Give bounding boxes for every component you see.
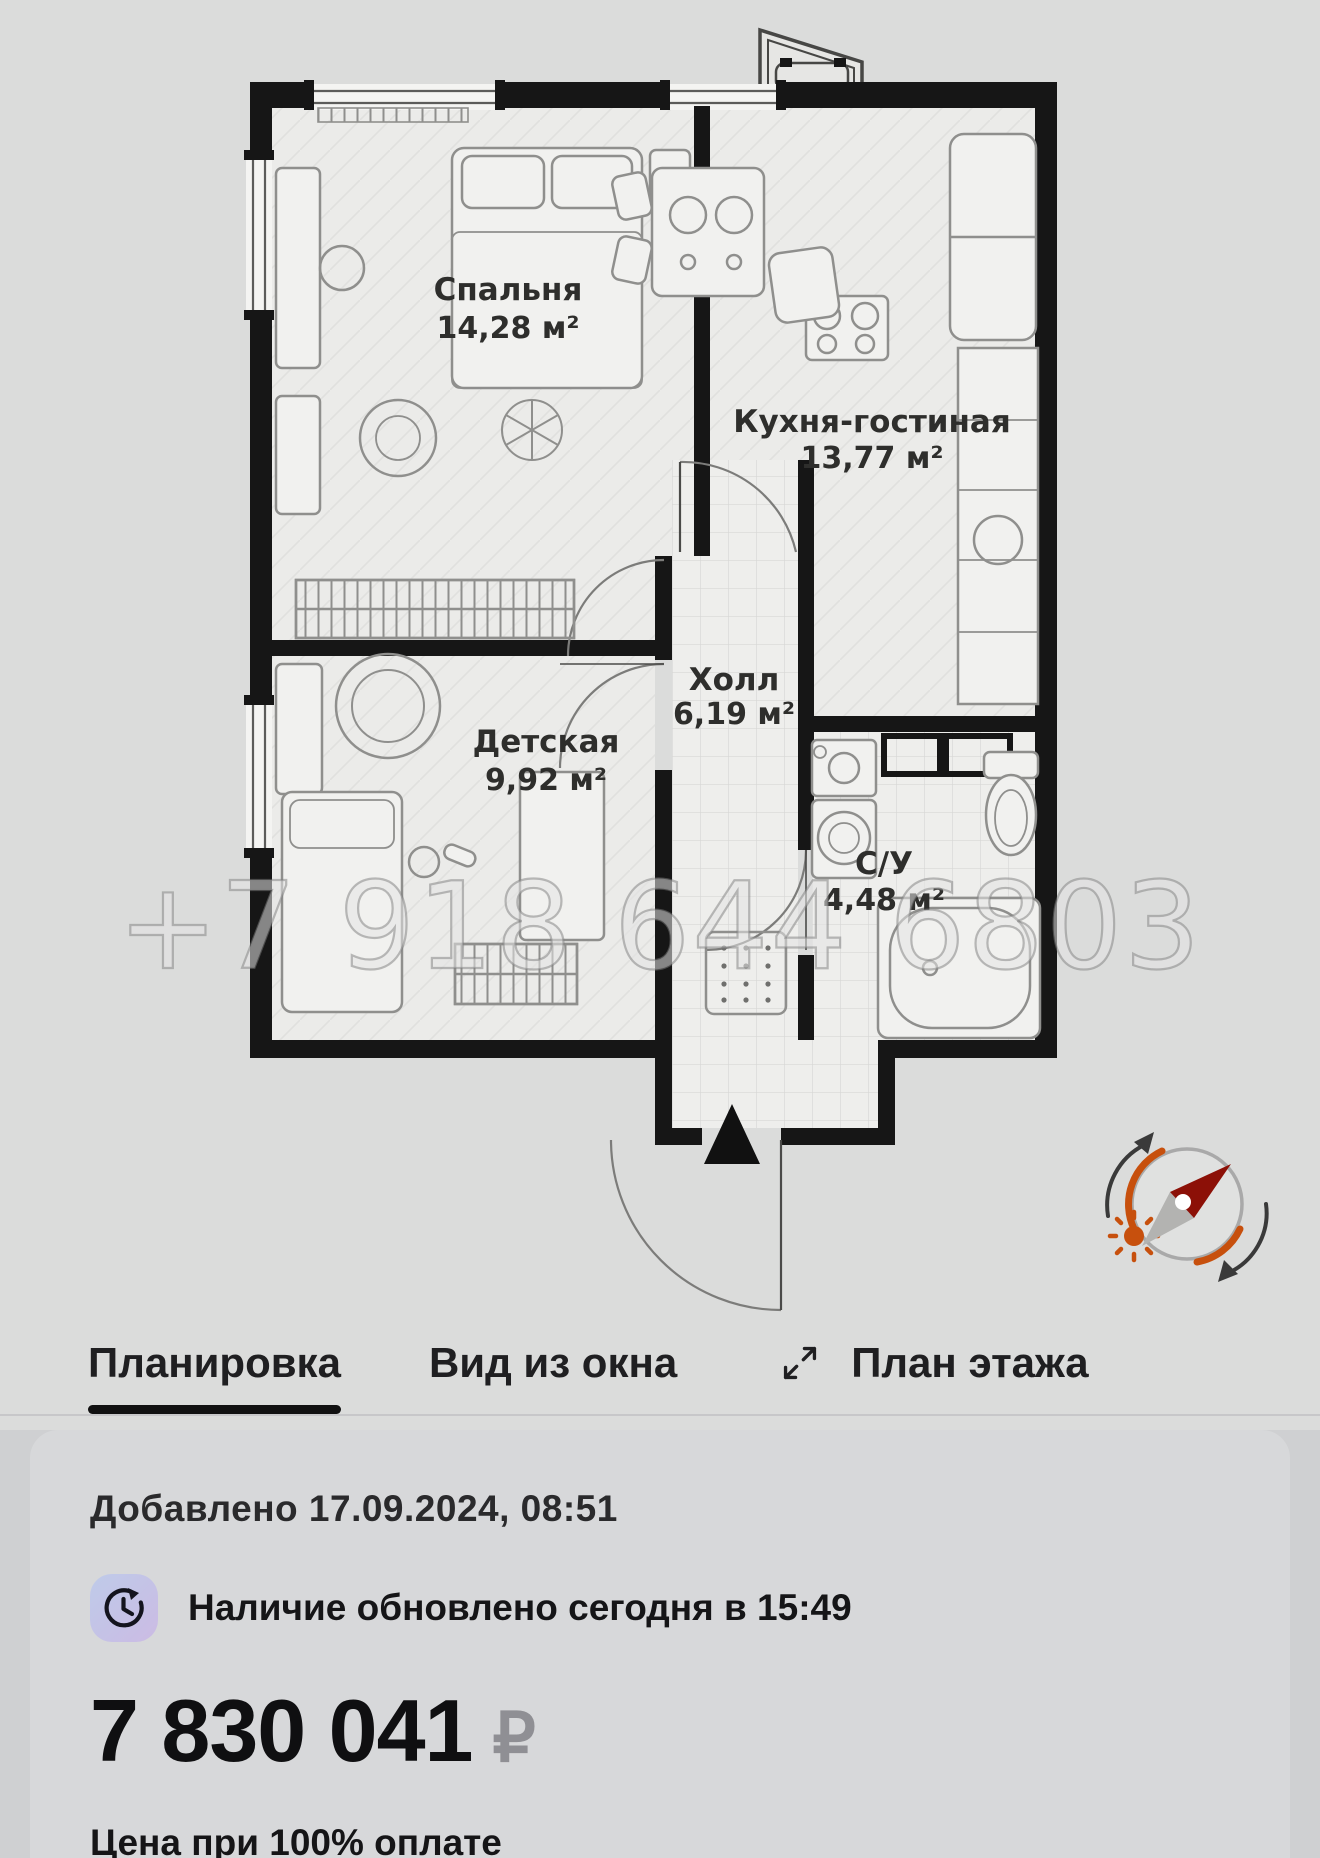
room-name-kitchen: Кухня-гостиная bbox=[733, 404, 1011, 440]
added-date: Добавлено 17.09.2024, 08:51 bbox=[90, 1488, 1230, 1530]
clock-refresh-icon bbox=[90, 1574, 158, 1642]
room-area-bathroom: 4,48 м² bbox=[823, 883, 945, 918]
compass-icon bbox=[1107, 1132, 1266, 1282]
room-area-hall: 6,19 м² bbox=[673, 697, 795, 732]
room-name-bathroom: С/У bbox=[855, 846, 913, 882]
price-value: 7 830 041 bbox=[90, 1680, 473, 1782]
availability-text: Наличие обновлено сегодня в 15:49 bbox=[188, 1587, 852, 1629]
room-name-bedroom: Спальня bbox=[434, 272, 583, 308]
price-row: 7 830 041 ₽ bbox=[90, 1680, 1230, 1782]
room-area-bedroom: 14,28 м² bbox=[437, 311, 580, 346]
tab-floor-plan[interactable]: План этажа bbox=[851, 1312, 1088, 1414]
price-note: Цена при 100% оплате bbox=[90, 1822, 1230, 1858]
plan-tabs: Планировка Вид из окна План этажа bbox=[0, 1312, 1320, 1416]
bottom-sheet: Добавлено 17.09.2024, 08:51 Наличие обно… bbox=[0, 1430, 1320, 1858]
floor-plan-viewer[interactable]: Спальня 14,28 м² Кухня-гостиная 13,77 м²… bbox=[0, 0, 1320, 1312]
tab-layout[interactable]: Планировка bbox=[88, 1312, 341, 1414]
room-name-children: Детская bbox=[473, 724, 620, 760]
expand-icon[interactable] bbox=[780, 1343, 820, 1383]
listing-info-card: Добавлено 17.09.2024, 08:51 Наличие обно… bbox=[30, 1430, 1290, 1858]
room-name-hall: Холл bbox=[689, 662, 780, 698]
floor-plan-drawing: Спальня 14,28 м² Кухня-гостиная 13,77 м²… bbox=[0, 0, 1320, 1312]
availability-row: Наличие обновлено сегодня в 15:49 bbox=[90, 1574, 1230, 1642]
room-area-children: 9,92 м² bbox=[485, 763, 607, 798]
tab-window-view[interactable]: Вид из окна bbox=[429, 1312, 677, 1414]
ruble-sign: ₽ bbox=[493, 1699, 536, 1778]
room-area-kitchen: 13,77 м² bbox=[801, 441, 944, 476]
